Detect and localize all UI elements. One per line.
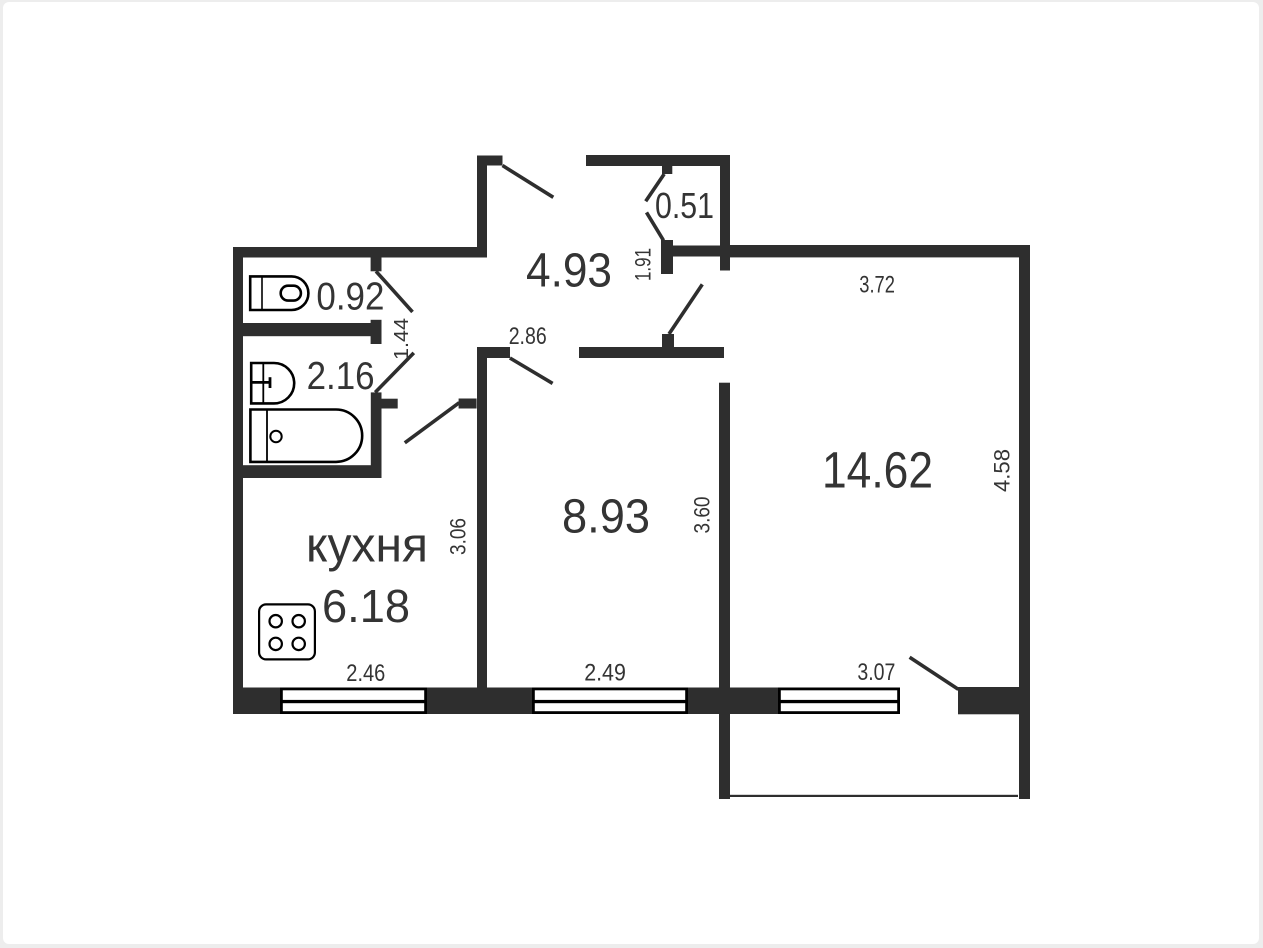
svg-text:4.58: 4.58 — [990, 449, 1015, 492]
svg-text:3.07: 3.07 — [857, 659, 895, 686]
svg-text:2.86: 2.86 — [509, 323, 547, 350]
svg-text:0.92: 0.92 — [316, 276, 384, 319]
svg-text:кухня: кухня — [306, 519, 428, 573]
svg-text:3.60: 3.60 — [690, 497, 715, 534]
svg-text:1.91: 1.91 — [631, 248, 656, 281]
svg-text:6.18: 6.18 — [322, 580, 410, 632]
svg-text:3.06: 3.06 — [446, 518, 471, 555]
svg-text:14.62: 14.62 — [822, 442, 933, 499]
svg-text:8.93: 8.93 — [562, 491, 650, 544]
svg-text:2.46: 2.46 — [346, 660, 385, 687]
svg-text:0.51: 0.51 — [655, 185, 714, 226]
svg-text:3.72: 3.72 — [859, 272, 895, 299]
svg-text:2.16: 2.16 — [307, 355, 375, 398]
svg-text:4.93: 4.93 — [526, 244, 612, 298]
svg-text:2.49: 2.49 — [584, 660, 626, 687]
svg-text:1.44: 1.44 — [391, 318, 413, 360]
